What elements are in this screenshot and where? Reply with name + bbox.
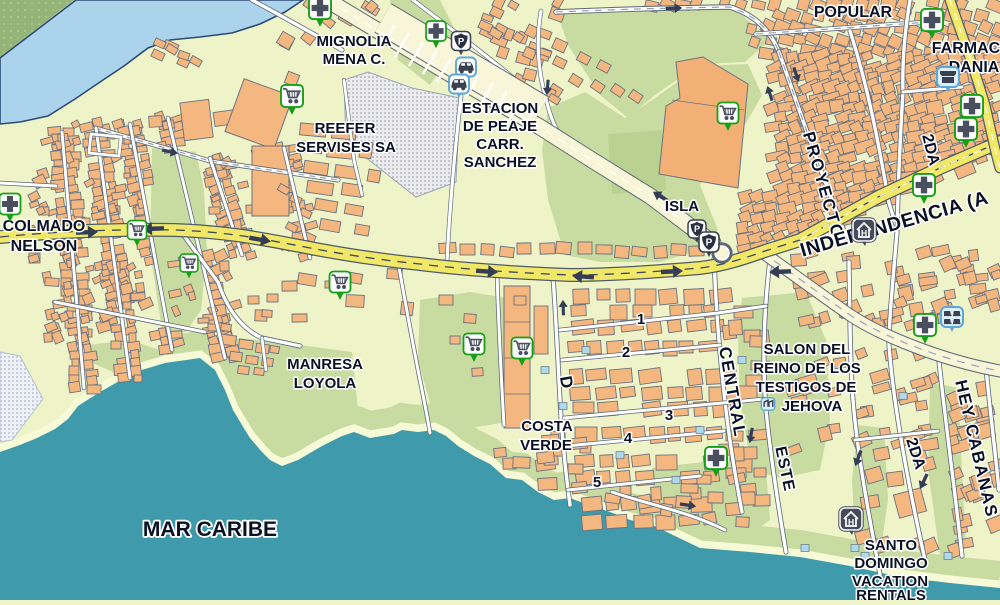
svg-text:COSTA: COSTA: [521, 418, 573, 435]
svg-text:REINO DE LOS: REINO DE LOS: [753, 360, 861, 377]
svg-text:CARR.: CARR.: [476, 136, 524, 153]
svg-text:LOYOLA: LOYOLA: [294, 375, 357, 392]
svg-text:2: 2: [622, 344, 630, 361]
svg-text:REEFER: REEFER: [315, 120, 376, 137]
svg-text:SANTO: SANTO: [865, 537, 918, 554]
svg-text:SALON DEL: SALON DEL: [764, 341, 851, 358]
svg-text:TESTIGOS DE: TESTIGOS DE: [756, 379, 857, 396]
svg-text:RENTALS: RENTALS: [856, 587, 926, 600]
svg-text:SANCHEZ: SANCHEZ: [464, 154, 537, 171]
svg-text:MENA C.: MENA C.: [323, 51, 386, 68]
svg-text:ISLA: ISLA: [665, 198, 699, 215]
svg-text:MANRESA: MANRESA: [287, 356, 363, 373]
svg-text:JEHOVA: JEHOVA: [782, 398, 843, 415]
svg-text:VERDE: VERDE: [520, 437, 572, 454]
svg-text:5: 5: [593, 474, 601, 491]
svg-text:4: 4: [624, 430, 633, 447]
svg-text:DOMINGO: DOMINGO: [854, 555, 928, 572]
svg-text:MAR CARIBE: MAR CARIBE: [143, 518, 277, 541]
svg-text:NELSON: NELSON: [11, 238, 78, 255]
svg-text:FARMAC: FARMAC: [932, 40, 1000, 57]
svg-text:COLMADO: COLMADO: [3, 218, 86, 235]
svg-text:POPULAR: POPULAR: [814, 4, 893, 21]
svg-text:SERVISES SA: SERVISES SA: [296, 139, 396, 156]
svg-text:MIGNOLIA: MIGNOLIA: [317, 33, 392, 50]
svg-text:3: 3: [665, 407, 673, 424]
svg-text:DE PEAJE: DE PEAJE: [463, 118, 537, 135]
svg-text:ESTACION: ESTACION: [462, 100, 538, 117]
svg-text:1: 1: [637, 311, 645, 328]
